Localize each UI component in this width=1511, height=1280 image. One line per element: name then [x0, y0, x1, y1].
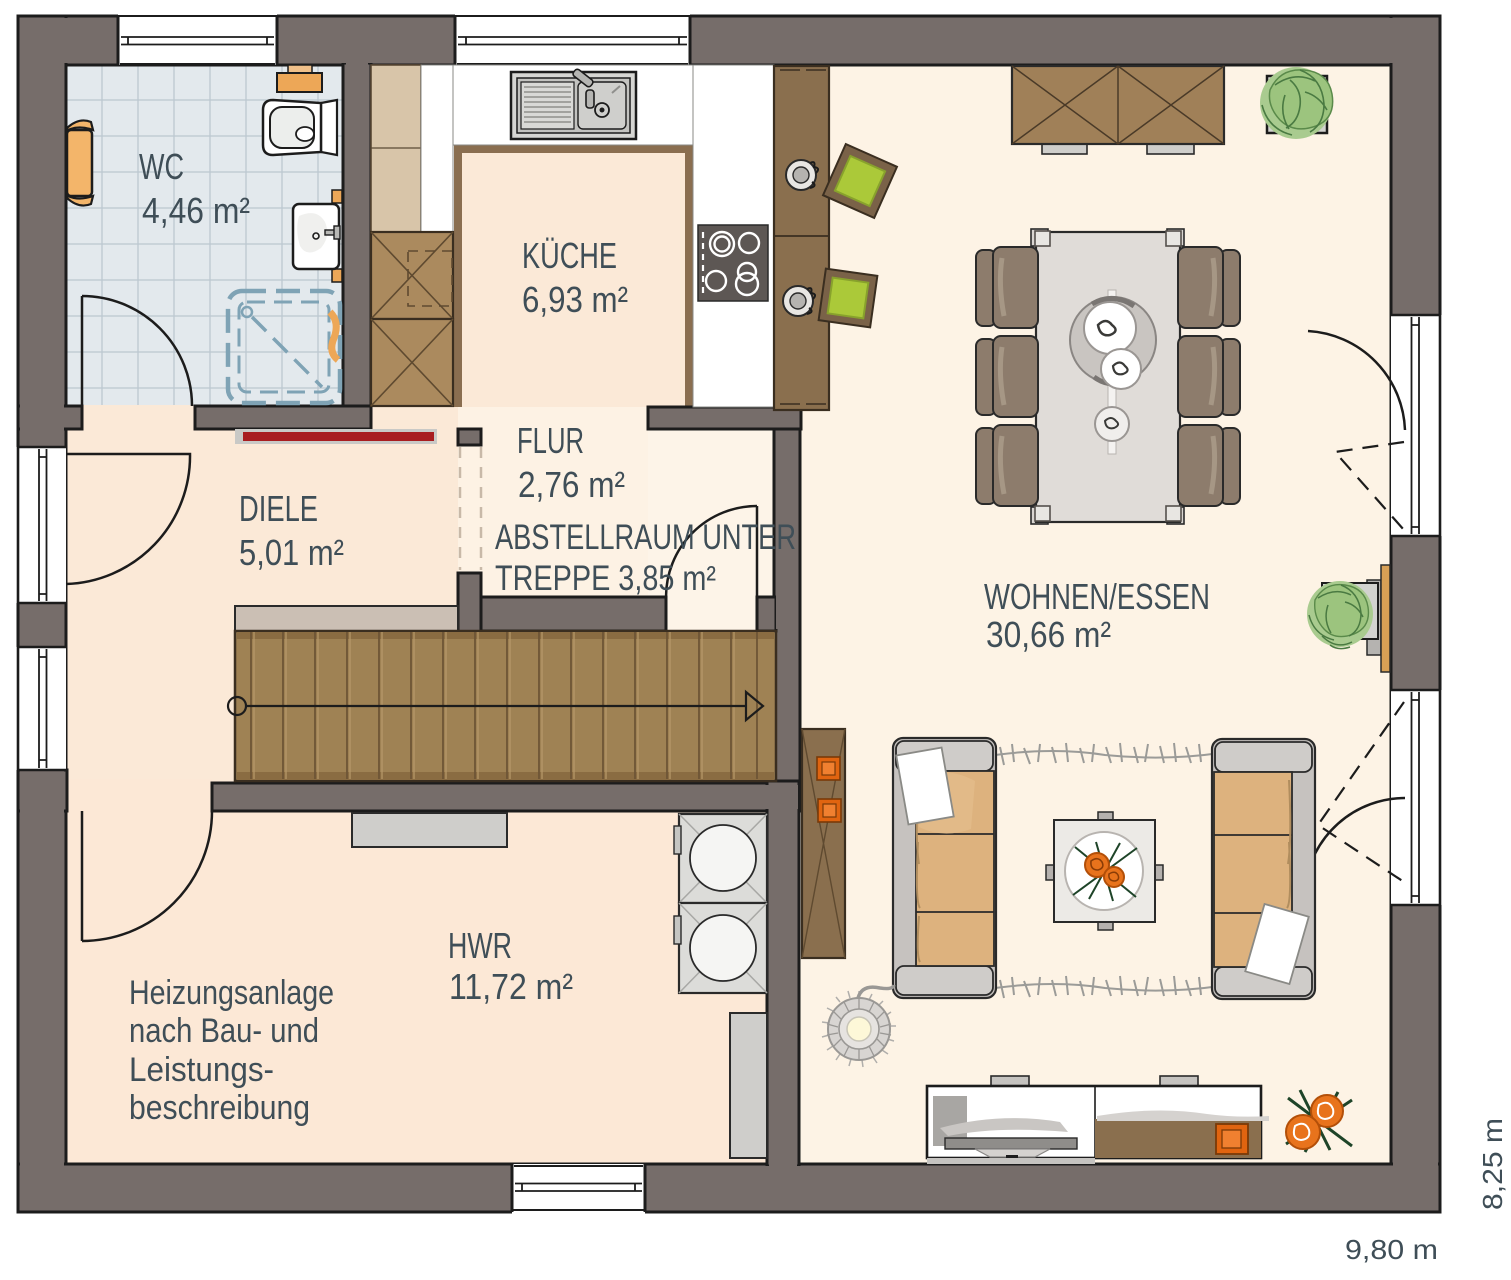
- svg-text:8,25 m: 8,25 m: [1477, 1118, 1508, 1210]
- svg-text:WC: WC: [139, 146, 184, 187]
- svg-text:Leistungs-: Leistungs-: [129, 1051, 274, 1089]
- svg-text:TREPPE 3,85 m²: TREPPE 3,85 m²: [495, 559, 716, 598]
- svg-text:nach Bau- und: nach Bau- und: [129, 1012, 319, 1050]
- svg-text:30,66 m²: 30,66 m²: [986, 614, 1111, 655]
- svg-text:2,76 m²: 2,76 m²: [518, 464, 625, 505]
- svg-text:HWR: HWR: [448, 925, 512, 966]
- svg-text:Heizungsanlage: Heizungsanlage: [129, 974, 334, 1012]
- svg-text:4,46 m²: 4,46 m²: [142, 190, 250, 231]
- svg-text:FLUR: FLUR: [517, 420, 584, 461]
- svg-text:11,72 m²: 11,72 m²: [449, 966, 573, 1007]
- svg-text:beschreibung: beschreibung: [129, 1089, 310, 1127]
- svg-text:5,01 m²: 5,01 m²: [239, 532, 344, 573]
- svg-text:KÜCHE: KÜCHE: [522, 235, 617, 276]
- svg-text:6,93 m²: 6,93 m²: [522, 279, 628, 320]
- svg-text:DIELE: DIELE: [239, 488, 318, 529]
- svg-text:WOHNEN/ESSEN: WOHNEN/ESSEN: [984, 576, 1210, 617]
- svg-text:ABSTELLRAUM UNTER: ABSTELLRAUM UNTER: [495, 518, 796, 557]
- svg-text:9,80 m: 9,80 m: [1345, 1234, 1438, 1265]
